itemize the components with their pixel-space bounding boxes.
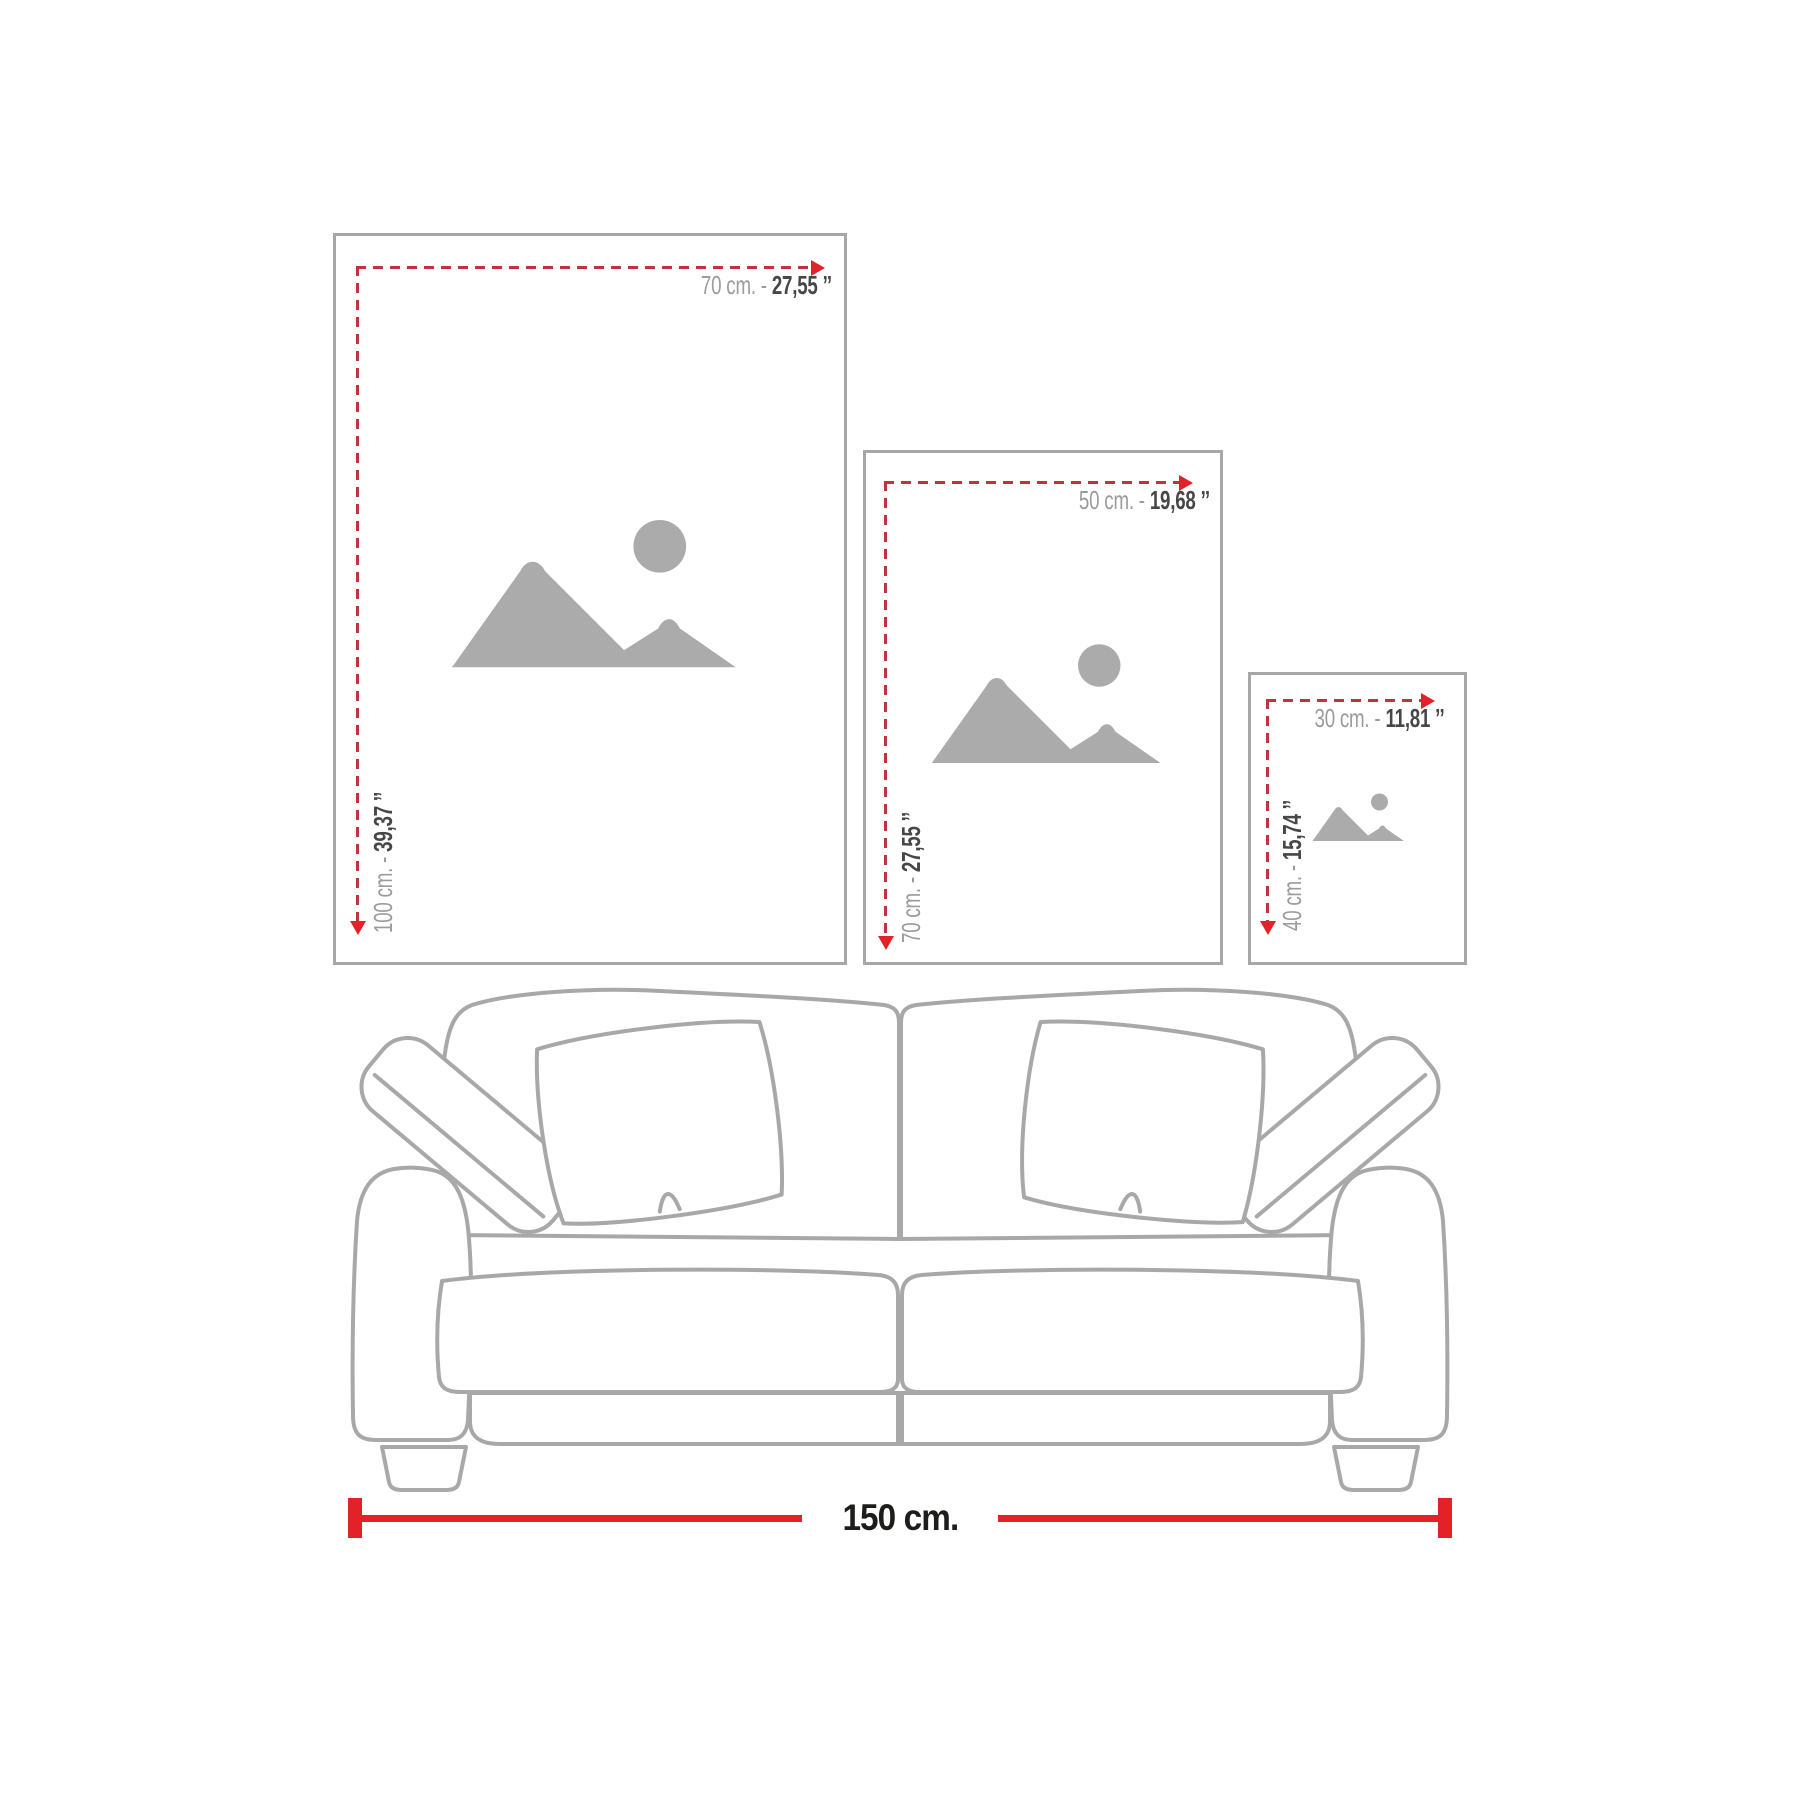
height-measure-line bbox=[884, 481, 887, 936]
width-dimension-label: 50 cm. -19,68 ’’ bbox=[1079, 485, 1210, 516]
sofa-foot-right bbox=[1334, 1447, 1418, 1490]
height-cm-value: 40 cm. - bbox=[1277, 865, 1307, 931]
height-dimension-label: 100 cm. -39,37 ’’ bbox=[368, 792, 399, 933]
sofa-seat-left bbox=[437, 1270, 898, 1392]
mountains-icon bbox=[932, 678, 1161, 763]
measure-line-right bbox=[998, 1515, 1438, 1522]
width-inch-value: 27,55 ’’ bbox=[772, 270, 832, 300]
arrow-down-icon bbox=[350, 921, 366, 935]
width-measure-line bbox=[1266, 699, 1421, 702]
measure-end-cap-left bbox=[348, 1498, 362, 1538]
width-cm-value: 30 cm. - bbox=[1314, 703, 1380, 733]
height-dimension-label: 70 cm. -27,55 ’’ bbox=[896, 812, 927, 943]
width-inch-value: 19,68 ’’ bbox=[1150, 485, 1210, 515]
size-frame-70x100: 70 cm. -27,55 ’’ 100 cm. -39,37 ’’ bbox=[333, 233, 847, 965]
size-frame-30x40: 30 cm. -11,81 ’’ 40 cm. -15,74 ’’ bbox=[1248, 672, 1467, 965]
sofa-width-measure: 150 cm. bbox=[348, 1498, 1452, 1538]
measure-line-left bbox=[362, 1515, 802, 1522]
width-cm-value: 50 cm. - bbox=[1079, 485, 1145, 515]
measure-end-cap-right bbox=[1438, 1498, 1452, 1538]
width-measure-line bbox=[356, 266, 811, 269]
height-cm-value: 100 cm. - bbox=[368, 857, 398, 933]
height-cm-value: 70 cm. - bbox=[896, 877, 926, 943]
mountains-icon bbox=[1313, 807, 1405, 841]
mountains-icon bbox=[452, 562, 736, 667]
sofa-foot-left bbox=[382, 1447, 466, 1490]
arrow-down-icon bbox=[1260, 921, 1276, 935]
height-inch-value: 39,37 ’’ bbox=[368, 792, 398, 852]
size-guide-diagram: 70 cm. -27,55 ’’ 100 cm. -39,37 ’’ 50 cm… bbox=[0, 0, 1800, 1800]
width-inch-value: 11,81 ’’ bbox=[1385, 703, 1444, 733]
sun-icon bbox=[633, 520, 686, 573]
sun-icon bbox=[1078, 644, 1121, 687]
height-measure-line bbox=[1266, 699, 1269, 921]
sofa-seat-right bbox=[902, 1270, 1363, 1392]
sofa-pillow-right bbox=[1013, 1014, 1270, 1231]
height-measure-line bbox=[356, 266, 359, 921]
height-dimension-label: 40 cm. -15,74 ’’ bbox=[1277, 800, 1308, 931]
width-dimension-label: 70 cm. -27,55 ’’ bbox=[701, 270, 832, 301]
width-cm-value: 70 cm. - bbox=[701, 270, 767, 300]
image-placeholder-icon bbox=[435, 506, 745, 692]
sofa-width-label: 150 cm. bbox=[842, 1497, 958, 1539]
sofa-illustration bbox=[350, 983, 1450, 1493]
image-placeholder-icon bbox=[1307, 789, 1407, 849]
sofa-pillow-left bbox=[531, 1014, 788, 1231]
width-measure-line bbox=[884, 481, 1179, 484]
image-placeholder-icon bbox=[918, 633, 1168, 783]
height-inch-value: 27,55 ’’ bbox=[896, 812, 926, 872]
width-dimension-label: 30 cm. -11,81 ’’ bbox=[1314, 703, 1444, 734]
sun-icon bbox=[1371, 794, 1388, 811]
height-inch-value: 15,74 ’’ bbox=[1277, 800, 1307, 860]
size-frame-50x70: 50 cm. -19,68 ’’ 70 cm. -27,55 ’’ bbox=[863, 450, 1223, 965]
arrow-down-icon bbox=[878, 936, 894, 950]
